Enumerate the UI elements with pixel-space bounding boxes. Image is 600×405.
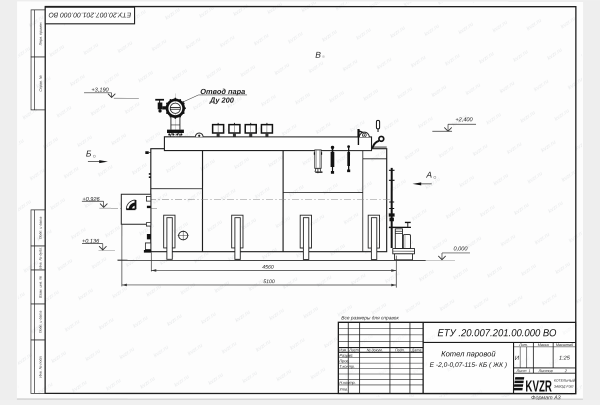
- svg-text:1: 1: [528, 368, 530, 373]
- svg-text:+2,400: +2,400: [455, 117, 473, 123]
- svg-text:Масштаб: Масштаб: [556, 343, 574, 347]
- svg-text:Справ. №: Справ. №: [39, 75, 43, 91]
- svg-text:ЗАВОД РЭП: ЗАВОД РЭП: [554, 385, 574, 389]
- svg-text:Лит.: Лит.: [518, 343, 528, 347]
- svg-text:КОТЕЛЬНЫЙ: КОТЕЛЬНЫЙ: [554, 379, 576, 383]
- svg-text:Перв. примен.: Перв. примен.: [39, 21, 43, 45]
- svg-text:Изм.: Изм.: [339, 348, 347, 352]
- svg-text:Масса: Масса: [538, 343, 549, 347]
- svg-text:Б: Б: [86, 149, 92, 159]
- svg-text:Лист: Лист: [348, 348, 359, 352]
- svg-text:И: И: [515, 356, 520, 362]
- svg-text:Ду 200: Ду 200: [209, 96, 235, 105]
- svg-text:ЕТУ .20.007.201.00.000 ВО: ЕТУ .20.007.201.00.000 ВО: [437, 328, 556, 339]
- svg-text:Инв. № дубл.: Инв. № дубл.: [39, 247, 43, 269]
- svg-text:В: В: [315, 50, 321, 60]
- svg-text:KVZR: KVZR: [525, 378, 552, 395]
- svg-text:Подп.: Подп.: [395, 348, 405, 352]
- svg-text:ЕТУ.20.007.201.00.000 ВО: ЕТУ.20.007.201.00.000 ВО: [48, 11, 131, 18]
- svg-text:Т.контр.: Т.контр.: [339, 364, 355, 369]
- svg-text:Е -2,0-0,07-115- КБ ( ЖК ): Е -2,0-0,07-115- КБ ( ЖК ): [430, 362, 507, 369]
- svg-text:Подп. и дата: Подп. и дата: [39, 311, 43, 334]
- svg-text:Дата: Дата: [411, 348, 422, 352]
- svg-text:Лист: Лист: [515, 368, 527, 373]
- svg-text:+0,926: +0,926: [82, 197, 100, 203]
- svg-text:4560: 4560: [262, 265, 274, 271]
- svg-text:Формат А3: Формат А3: [531, 395, 561, 400]
- svg-text:Подп. и дата: Подп. и дата: [39, 217, 43, 240]
- svg-text:Н.контр.: Н.контр.: [339, 380, 355, 385]
- svg-text:0,000: 0,000: [453, 246, 468, 252]
- svg-text:1:25: 1:25: [559, 356, 571, 362]
- svg-text:Котел паровой: Котел паровой: [441, 349, 496, 358]
- svg-text:Пров.: Пров.: [339, 358, 349, 363]
- svg-text:Инв. № подл.: Инв. № подл.: [39, 355, 43, 377]
- svg-text:5100: 5100: [263, 279, 275, 285]
- svg-text:Все размеры для справок: Все размеры для справок: [341, 315, 399, 321]
- svg-text:Разраб.: Разраб.: [339, 353, 353, 358]
- svg-text:№ докум.: № докум.: [367, 348, 383, 352]
- svg-text:А: А: [425, 170, 432, 180]
- svg-text:Листов: Листов: [537, 368, 552, 373]
- svg-text:Взам. инв. №: Взам. инв. №: [39, 276, 43, 298]
- svg-text:Утв.: Утв.: [339, 387, 348, 392]
